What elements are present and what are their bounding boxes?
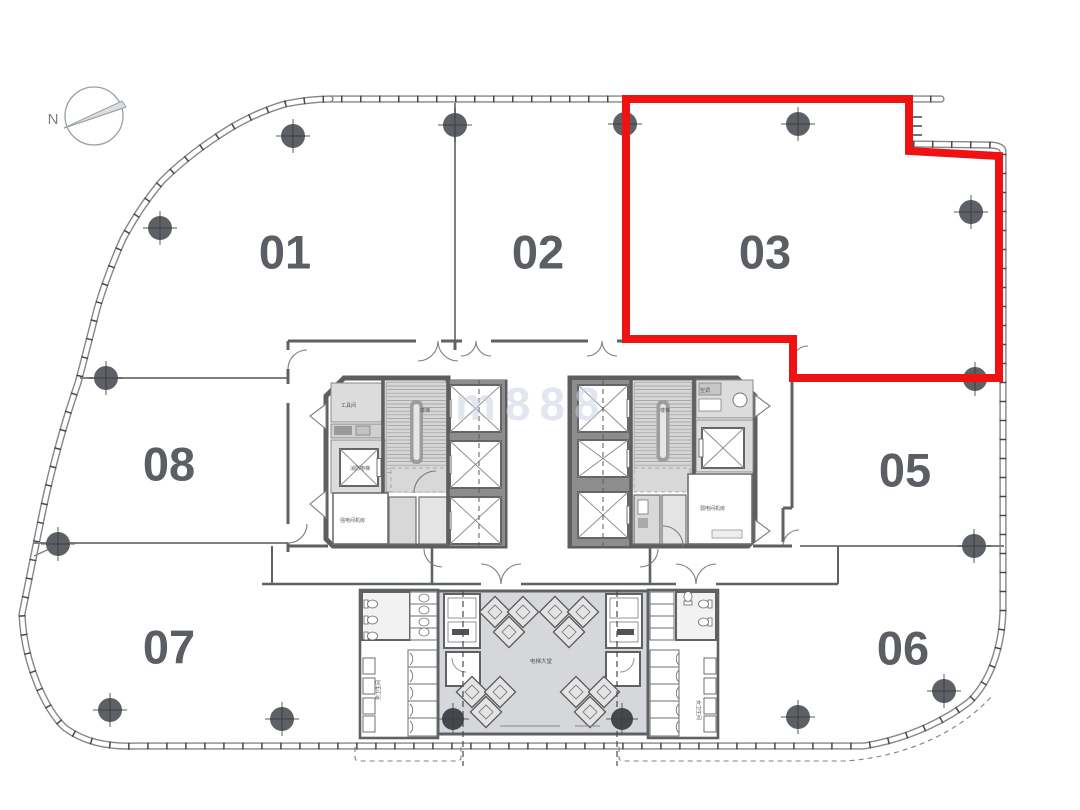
svg-text:02: 02 (512, 226, 564, 279)
svg-text:01: 01 (259, 226, 311, 279)
svg-text:m888: m888 (455, 378, 609, 430)
svg-text:06: 06 (877, 622, 929, 675)
svg-text:强电间机房: 强电间机房 (340, 517, 365, 524)
svg-text:工具间: 工具间 (341, 402, 356, 409)
svg-text:电梯大堂: 电梯大堂 (530, 657, 553, 665)
svg-text:07: 07 (143, 621, 195, 674)
svg-text:N: N (48, 111, 59, 128)
svg-text:空调: 空调 (700, 387, 710, 394)
svg-text:05: 05 (879, 444, 931, 497)
svg-text:楼梯: 楼梯 (420, 407, 430, 414)
svg-text:男卫生间: 男卫生间 (375, 680, 382, 700)
svg-text:消防电梯: 消防电梯 (350, 465, 370, 472)
svg-text:03: 03 (739, 226, 791, 279)
svg-text:楼梯: 楼梯 (660, 407, 670, 414)
svg-text:女卫生间: 女卫生间 (695, 700, 702, 720)
svg-text:弱电间机房: 弱电间机房 (700, 505, 725, 512)
svg-text:08: 08 (143, 438, 195, 491)
